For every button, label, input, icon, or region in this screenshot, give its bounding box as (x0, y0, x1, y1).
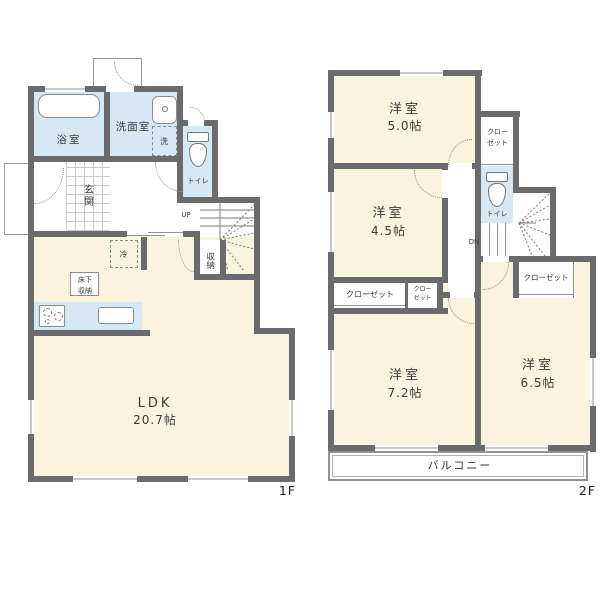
bathtub-icon (38, 94, 100, 118)
room50-label: 洋室 (355, 102, 455, 118)
burner-icon (43, 308, 52, 317)
wall-closet-divider (405, 283, 408, 308)
wall (513, 111, 519, 193)
window-room50-west (328, 112, 334, 138)
stairs-dn-label: DN (466, 238, 482, 247)
wall (220, 240, 226, 280)
closet-line (481, 164, 513, 165)
closet-small-label: クローゼット (412, 285, 433, 303)
toilet-icon (486, 172, 508, 182)
wall (590, 256, 596, 452)
wall (328, 308, 448, 314)
room72-label: 洋室 (355, 368, 455, 384)
closet-ne-label: クローゼット (486, 127, 509, 148)
underfloor-storage-label: 床下収納 (77, 275, 93, 296)
wall (254, 197, 260, 334)
burner-icon (45, 319, 50, 324)
ldk-size-label: 20.7帖 (100, 413, 210, 428)
room65-size-label: 6.5帖 (492, 376, 584, 391)
floor-tag-2f: 2F (566, 483, 596, 499)
toilet-label-1f: トイレ (181, 177, 215, 186)
door-gap (106, 86, 134, 92)
room45-label: 洋室 (336, 206, 441, 222)
wall-kitchen (28, 330, 150, 336)
sink-icon (98, 307, 134, 324)
window-ldk-east (289, 400, 295, 436)
wall (475, 70, 481, 117)
closet-hanger-line (519, 294, 573, 295)
room45-size-label: 4.5帖 (336, 224, 441, 239)
washroom-label: 洗面室 (103, 121, 163, 134)
closet-right-label: クローゼット (519, 273, 573, 282)
room65-label: 洋室 (492, 358, 584, 374)
door-arc-entrance (34, 168, 64, 204)
window-bath (45, 86, 85, 92)
wall (28, 476, 295, 482)
room-ldk-extension (254, 334, 289, 476)
door-arc-toilet (190, 107, 205, 122)
wall-stub-fridge (141, 237, 147, 270)
window-ldk-south (73, 476, 137, 482)
fridge-label: 冷 (110, 250, 138, 260)
window-room72-west (328, 350, 334, 410)
storage-label: 収納 (204, 245, 215, 275)
closet-left-label: クローゼット (336, 290, 404, 300)
stair-tread-line (505, 223, 506, 256)
hallway-2f (448, 169, 475, 292)
stairs-up-label: UP (178, 211, 194, 220)
wall (194, 237, 200, 280)
floorplan-canvas: 浴室 洗面室 洗 トイレ 玄関 UP 収納 冷 床下収納 LDK 20.7帖 1… (0, 0, 600, 599)
burner-icon (54, 312, 63, 321)
wall (212, 120, 218, 203)
bath-label: 浴室 (39, 134, 99, 147)
washbasin-drain-icon (162, 106, 168, 112)
window-ldk-west (28, 400, 34, 434)
wall (328, 277, 448, 283)
entrance-label: 玄関 (80, 174, 93, 218)
wall (550, 187, 556, 262)
window-ldk-south (188, 476, 248, 482)
door-arc-washroom (155, 162, 182, 192)
floor-tag-1f: 1F (266, 483, 296, 499)
closet-line (573, 262, 574, 298)
closet-hanger-line (334, 305, 405, 306)
sliding-door-line (127, 235, 165, 236)
window-room65-east (590, 358, 596, 406)
porch (4, 163, 29, 235)
room50-size-label: 5.0帖 (355, 119, 455, 134)
toilet-label-2f: トイレ (481, 210, 513, 219)
stairs-2f-fan (519, 193, 550, 256)
window-room45-west (328, 192, 334, 252)
ldk-label: LDK (100, 396, 210, 412)
sliding-door-line (148, 232, 183, 233)
room72-size-label: 7.2帖 (355, 386, 455, 401)
balcony-label: バルコニー (370, 459, 550, 473)
window-room50-north (400, 70, 443, 76)
stair-tread-line (489, 223, 490, 256)
laundry-label: 洗 (152, 137, 177, 147)
stair-tread-line (497, 223, 498, 256)
wall (475, 111, 481, 452)
wall (183, 197, 260, 203)
toilet-icon (187, 132, 209, 142)
door-gap-45 (442, 170, 448, 198)
